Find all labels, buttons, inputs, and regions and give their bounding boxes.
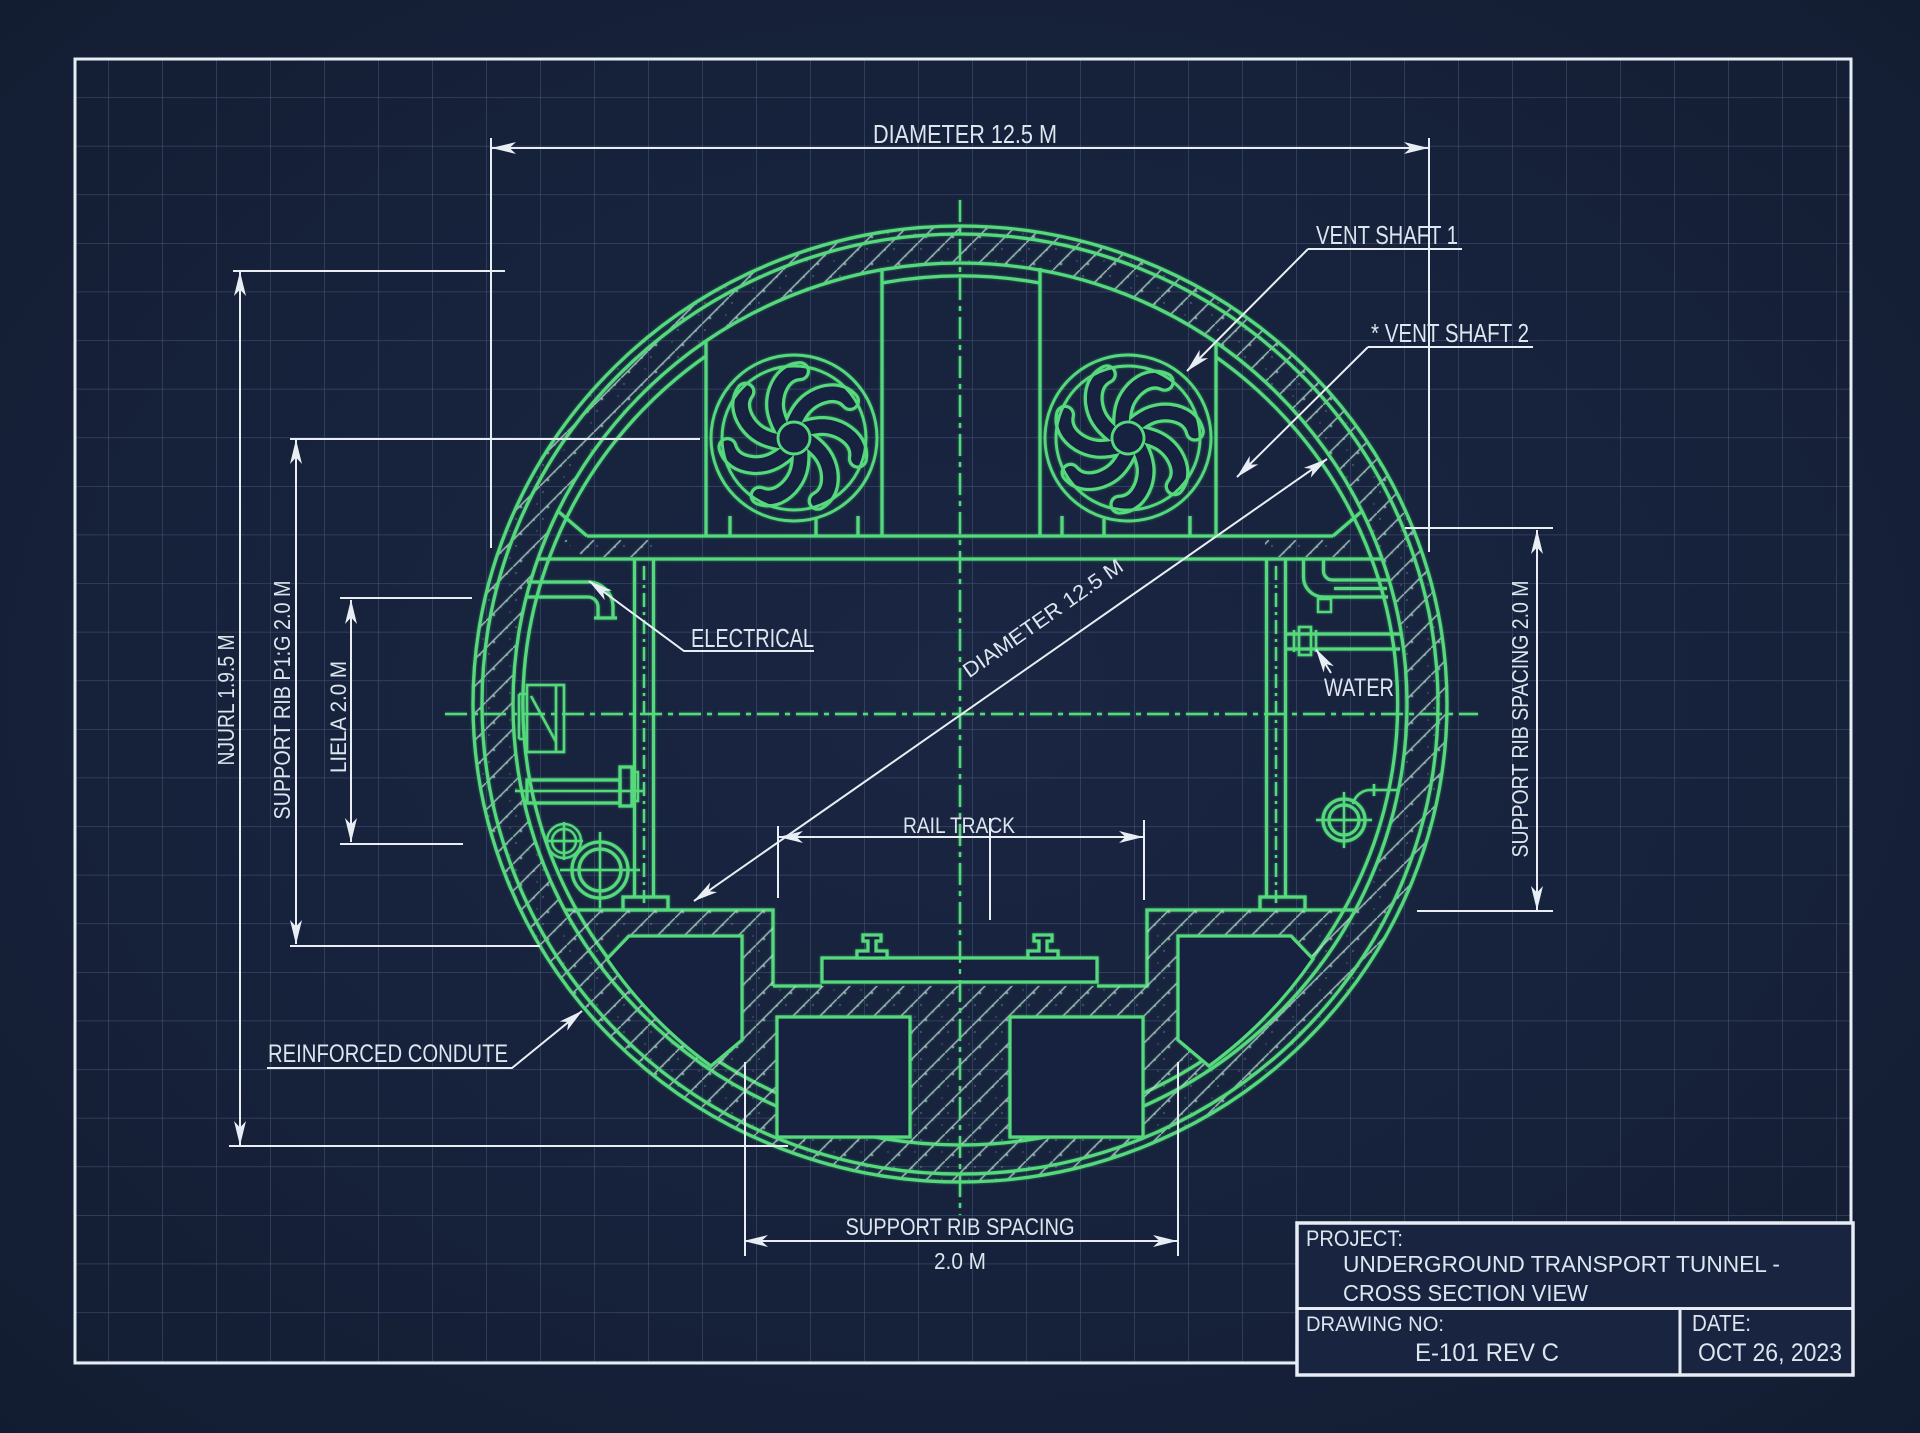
- svg-text:DRAWING NO:: DRAWING NO:: [1306, 1313, 1444, 1336]
- svg-text:WATER: WATER: [1324, 674, 1394, 702]
- svg-text:LIELA 2.0 M: LIELA 2.0 M: [326, 661, 351, 773]
- svg-text:SUPPORT RIB SPACING 2.0 M: SUPPORT RIB SPACING 2.0 M: [1507, 581, 1533, 858]
- svg-text:RAIL TRACK: RAIL TRACK: [903, 813, 1015, 838]
- svg-text:REINFORCED CONDUTE: REINFORCED CONDUTE: [268, 1040, 508, 1068]
- svg-text:SUPPORT RIB P1:G 2.0 M: SUPPORT RIB P1:G 2.0 M: [269, 581, 295, 820]
- svg-text:CROSS SECTION VIEW: CROSS SECTION VIEW: [1343, 1280, 1588, 1306]
- svg-text:DIAMETER 12.5 M: DIAMETER 12.5 M: [873, 119, 1057, 149]
- svg-text:SUPPORT RIB SPACING: SUPPORT RIB SPACING: [846, 1214, 1075, 1241]
- svg-text:ELECTRICAL: ELECTRICAL: [691, 623, 814, 653]
- svg-text:DATE:: DATE:: [1692, 1310, 1751, 1336]
- svg-text:OCT 26, 2023: OCT 26, 2023: [1698, 1339, 1842, 1367]
- svg-text:E-101 REV C: E-101 REV C: [1415, 1339, 1559, 1367]
- svg-text:UNDERGROUND TRANSPORT TUNNEL -: UNDERGROUND TRANSPORT TUNNEL -: [1343, 1251, 1780, 1277]
- svg-text:* VENT SHAFT 2: * VENT SHAFT 2: [1371, 318, 1529, 348]
- svg-text:VENT SHAFT 1: VENT SHAFT 1: [1316, 220, 1458, 250]
- svg-text:NJURL 1.9.5 M: NJURL 1.9.5 M: [213, 635, 239, 766]
- svg-text:2.0 M: 2.0 M: [934, 1248, 986, 1274]
- svg-text:PROJECT:: PROJECT:: [1306, 1226, 1403, 1251]
